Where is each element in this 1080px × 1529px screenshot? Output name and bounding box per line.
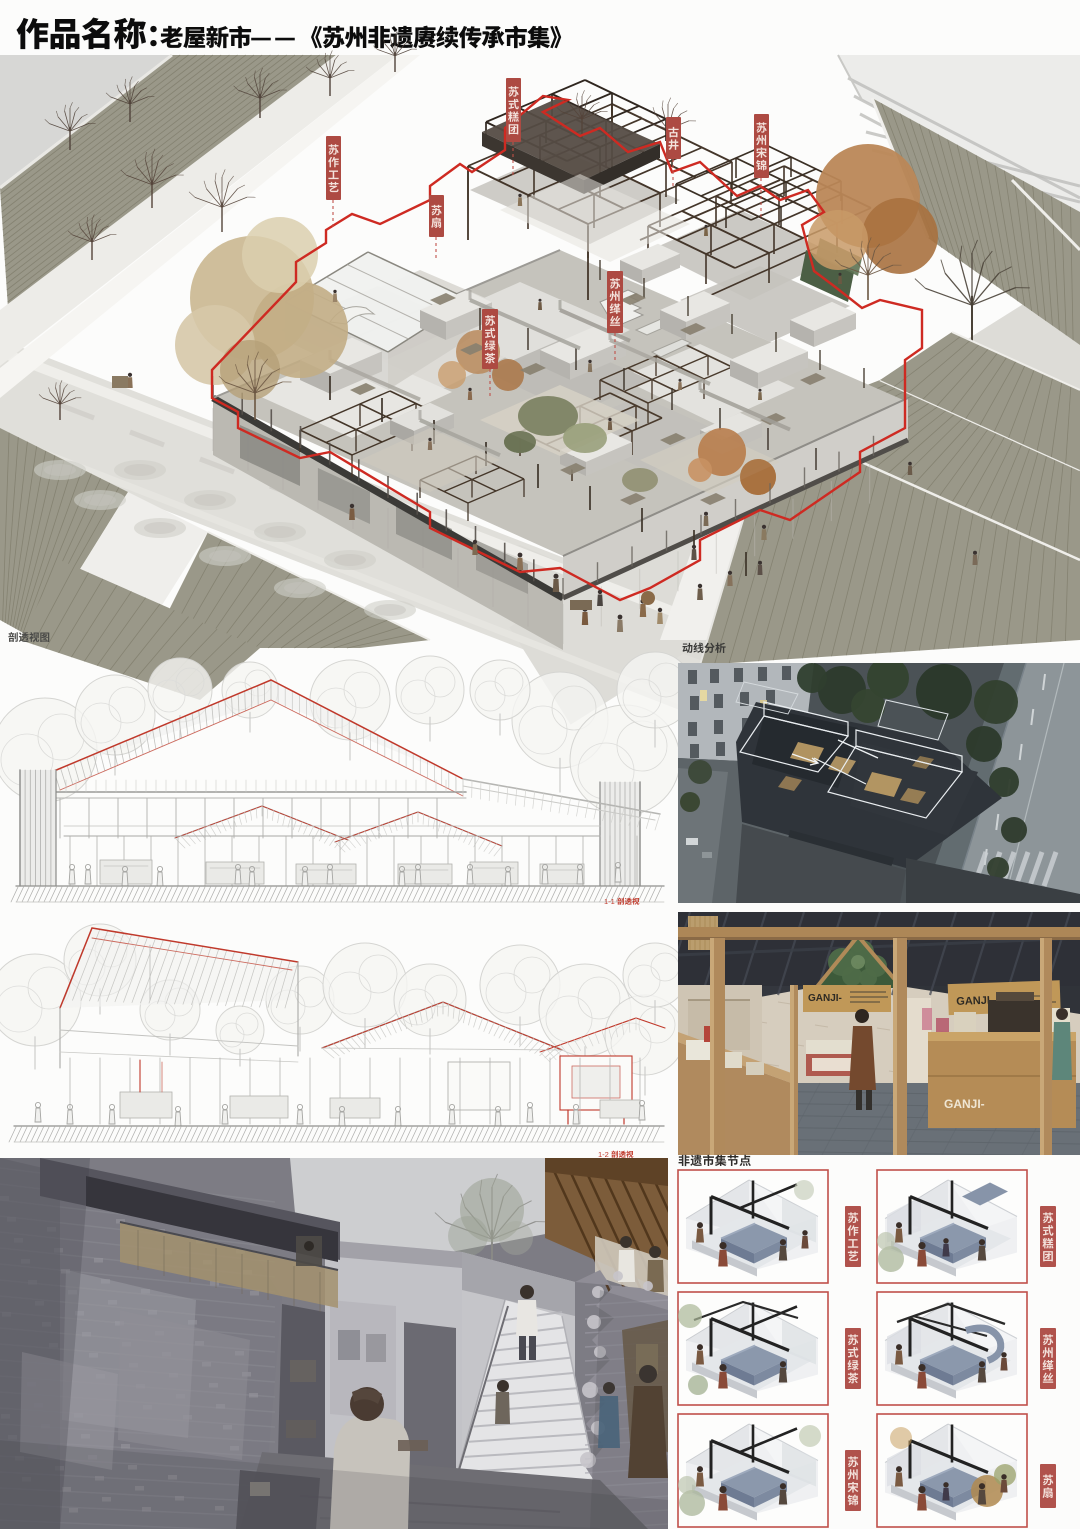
- svg-text:1-1: 1-1: [604, 897, 615, 906]
- svg-text:GANJI-: GANJI-: [944, 1097, 985, 1111]
- svg-text:1-2: 1-2: [598, 1150, 609, 1159]
- svg-text:GANJI-: GANJI-: [808, 993, 842, 1004]
